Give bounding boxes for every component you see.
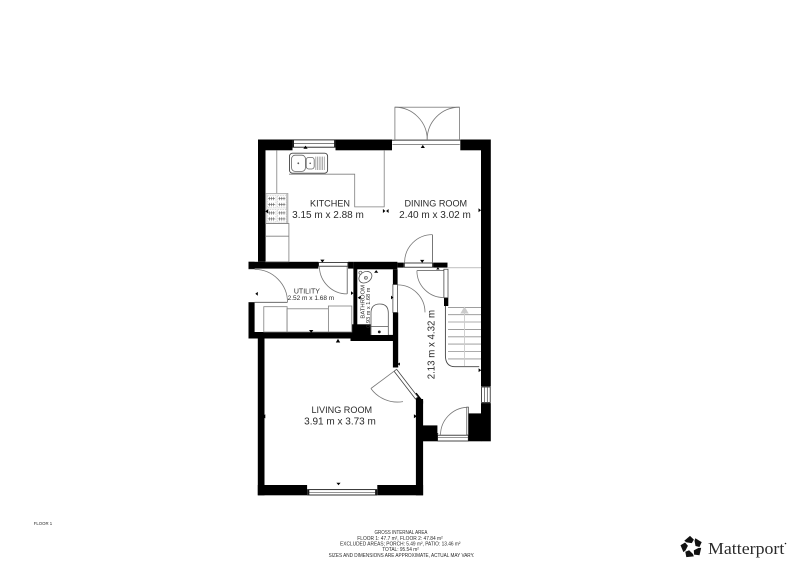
- svg-text:SIZES AND DIMENSIONS ARE APPRO: SIZES AND DIMENSIONS ARE APPROXIMATE, AC…: [329, 553, 475, 559]
- svg-text:2.13 m x 4.32 m: 2.13 m x 4.32 m: [426, 310, 437, 379]
- svg-text:Matterport: Matterport: [708, 539, 785, 557]
- svg-text:LIVING ROOM: LIVING ROOM: [311, 405, 372, 415]
- svg-text:2.40 m x 3.02 m: 2.40 m x 3.02 m: [399, 210, 471, 221]
- svg-text:0.93 m x 1.68 m: 0.93 m x 1.68 m: [366, 287, 372, 327]
- svg-text:3.15 m x 2.88 m: 3.15 m x 2.88 m: [292, 210, 364, 221]
- svg-text:DINING ROOM: DINING ROOM: [404, 198, 467, 208]
- svg-text:KITCHEN: KITCHEN: [310, 198, 350, 208]
- svg-text:2.52 m x 1.68 m: 2.52 m x 1.68 m: [288, 295, 335, 302]
- svg-text:FLOOR 1: FLOOR 1: [34, 521, 53, 526]
- svg-text:3.91 m x 3.73 m: 3.91 m x 3.73 m: [304, 417, 376, 428]
